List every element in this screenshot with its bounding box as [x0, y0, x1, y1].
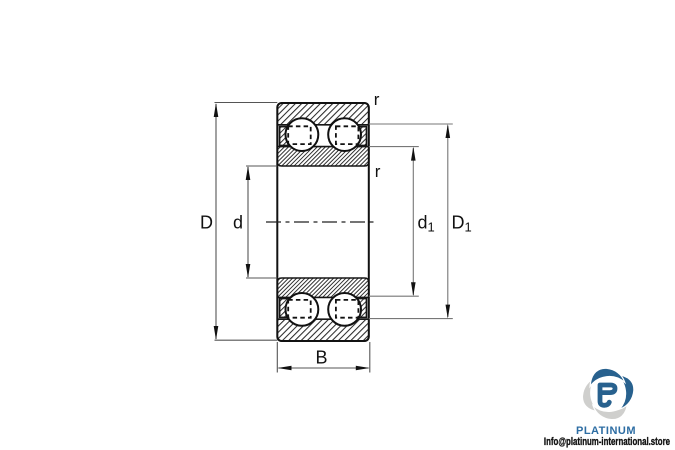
svg-text:D: D: [200, 213, 213, 233]
svg-text:D1: D1: [452, 213, 472, 235]
svg-text:Info@platinum-international.st: Info@platinum-international.store: [544, 436, 671, 449]
svg-text:d: d: [233, 213, 243, 233]
svg-text:d1: d1: [418, 213, 435, 235]
svg-text:r: r: [375, 162, 381, 181]
svg-text:r: r: [374, 90, 380, 109]
svg-text:B: B: [315, 348, 327, 368]
